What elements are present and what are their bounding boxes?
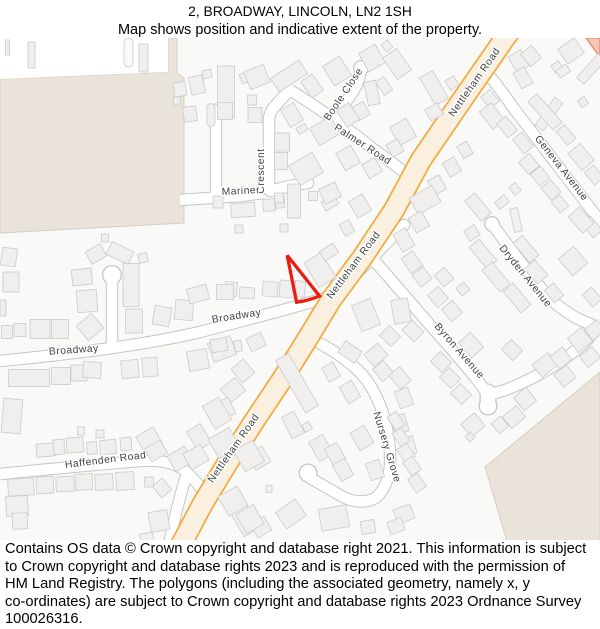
svg-text:Mariner: Mariner [221, 185, 260, 198]
